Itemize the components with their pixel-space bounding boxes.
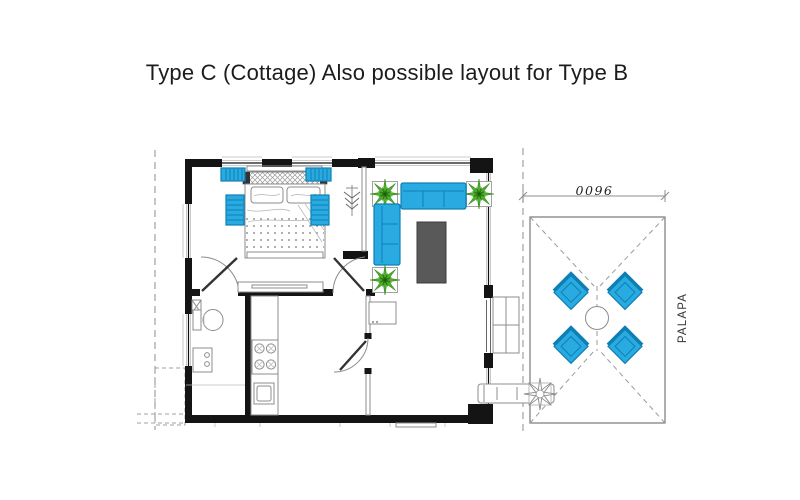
living-room <box>370 179 494 295</box>
bedside-mat <box>306 168 331 181</box>
exterior-sill <box>396 423 436 427</box>
bathroom <box>186 300 245 385</box>
stove <box>252 340 278 374</box>
corner-column <box>470 158 493 173</box>
window <box>183 314 191 366</box>
page: Type C (Cottage) Also possible layout fo… <box>0 0 800 500</box>
doors <box>201 257 368 372</box>
window <box>375 157 471 166</box>
floor-plan-drawing: 9600 PALAPA <box>0 0 800 500</box>
palapa-table <box>586 307 609 330</box>
toilet <box>193 310 223 331</box>
plant-icon <box>370 265 400 295</box>
sliding-door <box>487 298 491 353</box>
entry-steps <box>493 297 519 353</box>
louver-icon <box>344 185 360 216</box>
sofa-vertical <box>374 204 400 265</box>
foot-bench <box>247 252 323 258</box>
tv-console <box>238 282 323 292</box>
kitchen-sink <box>254 383 274 404</box>
window <box>222 157 262 166</box>
bedside-mat <box>311 195 329 225</box>
kitchen-door <box>334 338 368 372</box>
bathroom-kitchen-wall <box>245 289 251 422</box>
bedroom-door-left <box>201 257 239 293</box>
setback-dashed-rect <box>155 368 185 425</box>
bathroom-sink <box>193 348 212 372</box>
kitchen <box>251 296 396 415</box>
bedroom-partition <box>362 167 366 251</box>
bedside-mat <box>226 195 244 225</box>
dimension-label: 9600 <box>574 183 612 198</box>
coffee-table <box>417 222 446 283</box>
window <box>292 157 332 166</box>
dimension-line: 9600 <box>519 183 669 202</box>
outdoor-plant-icon <box>524 378 556 410</box>
sofa-horizontal <box>401 183 466 209</box>
bedside-mat <box>221 168 245 181</box>
corner-column <box>468 404 493 424</box>
plant-icon <box>464 179 494 209</box>
window <box>183 204 191 258</box>
fridge <box>369 302 396 324</box>
palapa-label: PALAPA <box>677 293 689 343</box>
bedroom-door-right <box>333 257 365 293</box>
